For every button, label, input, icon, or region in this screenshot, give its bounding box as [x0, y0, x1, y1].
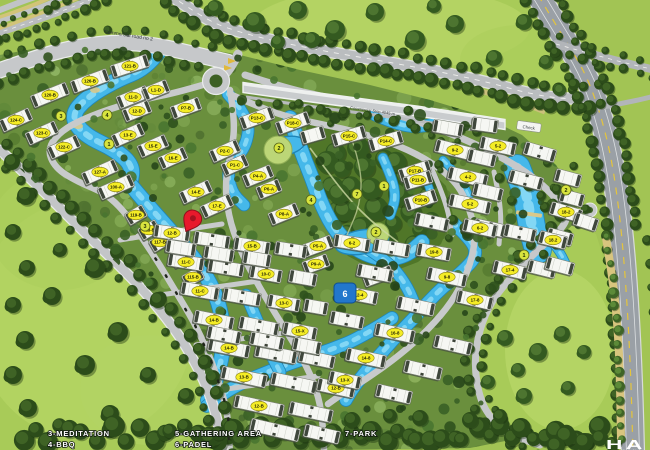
svg-text:13-E: 13-E: [123, 133, 132, 138]
svg-text:121-B: 121-B: [124, 64, 136, 69]
svg-text:16-8: 16-8: [391, 331, 400, 336]
svg-text:10-C: 10-C: [261, 272, 271, 277]
svg-text:4-2: 4-2: [465, 175, 472, 180]
svg-text:6-PADEL: 6-PADEL: [175, 440, 212, 449]
svg-text:7: 7: [356, 192, 359, 198]
svg-text:P11-B: P11-B: [412, 178, 424, 183]
svg-text:115-B: 115-B: [187, 275, 199, 280]
svg-text:4-BBQ: 4-BBQ: [48, 440, 75, 449]
svg-text:15-X: 15-X: [295, 329, 304, 334]
svg-text:P7-B: P7-B: [181, 106, 191, 111]
svg-text:14-B: 14-B: [209, 318, 219, 323]
svg-text:P10-B: P10-B: [415, 198, 427, 203]
svg-text:7-PARK: 7-PARK: [345, 429, 377, 438]
svg-text:P15-C: P15-C: [343, 134, 356, 139]
svg-text:1: 1: [108, 142, 111, 148]
svg-text:3: 3: [60, 114, 63, 120]
svg-text:19-8: 19-8: [430, 250, 439, 255]
svg-text:P18-C: P18-C: [287, 121, 300, 126]
svg-text:P8-A: P8-A: [279, 212, 290, 217]
svg-text:P2-C: P2-C: [220, 149, 231, 154]
svg-text:2: 2: [278, 146, 281, 152]
svg-text:P14-C: P14-C: [380, 139, 393, 144]
svg-text:11-D: 11-D: [128, 95, 137, 100]
svg-text:11-C: 11-C: [195, 289, 205, 294]
svg-text:17-E: 17-E: [212, 204, 221, 209]
svg-text:124-C: 124-C: [10, 118, 23, 123]
svg-text:P1-C: P1-C: [230, 163, 241, 168]
svg-text:18.2: 18.2: [549, 238, 558, 243]
svg-text:5-GATHERING AREA: 5-GATHERING AREA: [175, 429, 262, 438]
svg-text:4: 4: [310, 198, 313, 204]
svg-text:15-E: 15-E: [148, 144, 157, 149]
svg-text:15-B: 15-B: [247, 244, 257, 249]
svg-text:14-8: 14-8: [362, 356, 371, 361]
svg-text:9-2: 9-2: [452, 148, 459, 153]
svg-text:6-2: 6-2: [477, 226, 484, 231]
svg-text:122-C: 122-C: [58, 145, 71, 150]
svg-text:2: 2: [565, 188, 568, 194]
svg-text:126-B: 126-B: [84, 79, 96, 84]
svg-text:P4-A: P4-A: [253, 174, 264, 179]
svg-text:14-E: 14-E: [191, 190, 200, 195]
svg-text:13-C: 13-C: [279, 301, 289, 306]
svg-text:5-2: 5-2: [495, 144, 502, 149]
svg-text:17-8: 17-8: [471, 298, 480, 303]
svg-text:5-2: 5-2: [467, 202, 474, 207]
svg-text:P5-A: P5-A: [313, 244, 324, 249]
svg-text:14-B: 14-B: [224, 346, 234, 351]
svg-text:2: 2: [375, 230, 378, 236]
svg-text:12-B: 12-B: [167, 231, 177, 236]
svg-text:1: 1: [523, 253, 526, 259]
svg-text:L1-D: L1-D: [151, 88, 161, 93]
svg-text:119-B: 119-B: [130, 213, 142, 218]
svg-text:P6-A: P6-A: [264, 187, 275, 192]
svg-text:117-B: 117-B: [154, 240, 166, 245]
svg-text:P13-C: P13-C: [251, 116, 264, 121]
svg-text:16-E: 16-E: [168, 156, 177, 161]
svg-text:11-C: 11-C: [181, 260, 191, 265]
svg-text:13-X: 13-X: [340, 378, 349, 383]
svg-text:12-B: 12-B: [254, 404, 264, 409]
svg-text:13-B: 13-B: [239, 375, 249, 380]
svg-text:123-C: 123-C: [36, 131, 49, 136]
svg-text:6: 6: [342, 289, 347, 299]
svg-text:4: 4: [106, 113, 109, 119]
svg-text:18-2: 18-2: [562, 210, 571, 215]
svg-text:12-D: 12-D: [132, 109, 142, 114]
svg-text:17-4: 17-4: [506, 268, 515, 273]
svg-text:6-2: 6-2: [349, 241, 356, 246]
svg-text:9-8: 9-8: [444, 275, 451, 280]
svg-text:120-B: 120-B: [44, 93, 56, 98]
svg-text:3: 3: [144, 224, 147, 230]
svg-text:127-A: 127-A: [94, 170, 107, 175]
svg-text:100-A: 100-A: [110, 185, 123, 190]
svg-text:P9-A: P9-A: [311, 262, 322, 267]
svg-text:1: 1: [383, 184, 386, 190]
svg-text:3-MEDITATION: 3-MEDITATION: [48, 429, 110, 438]
